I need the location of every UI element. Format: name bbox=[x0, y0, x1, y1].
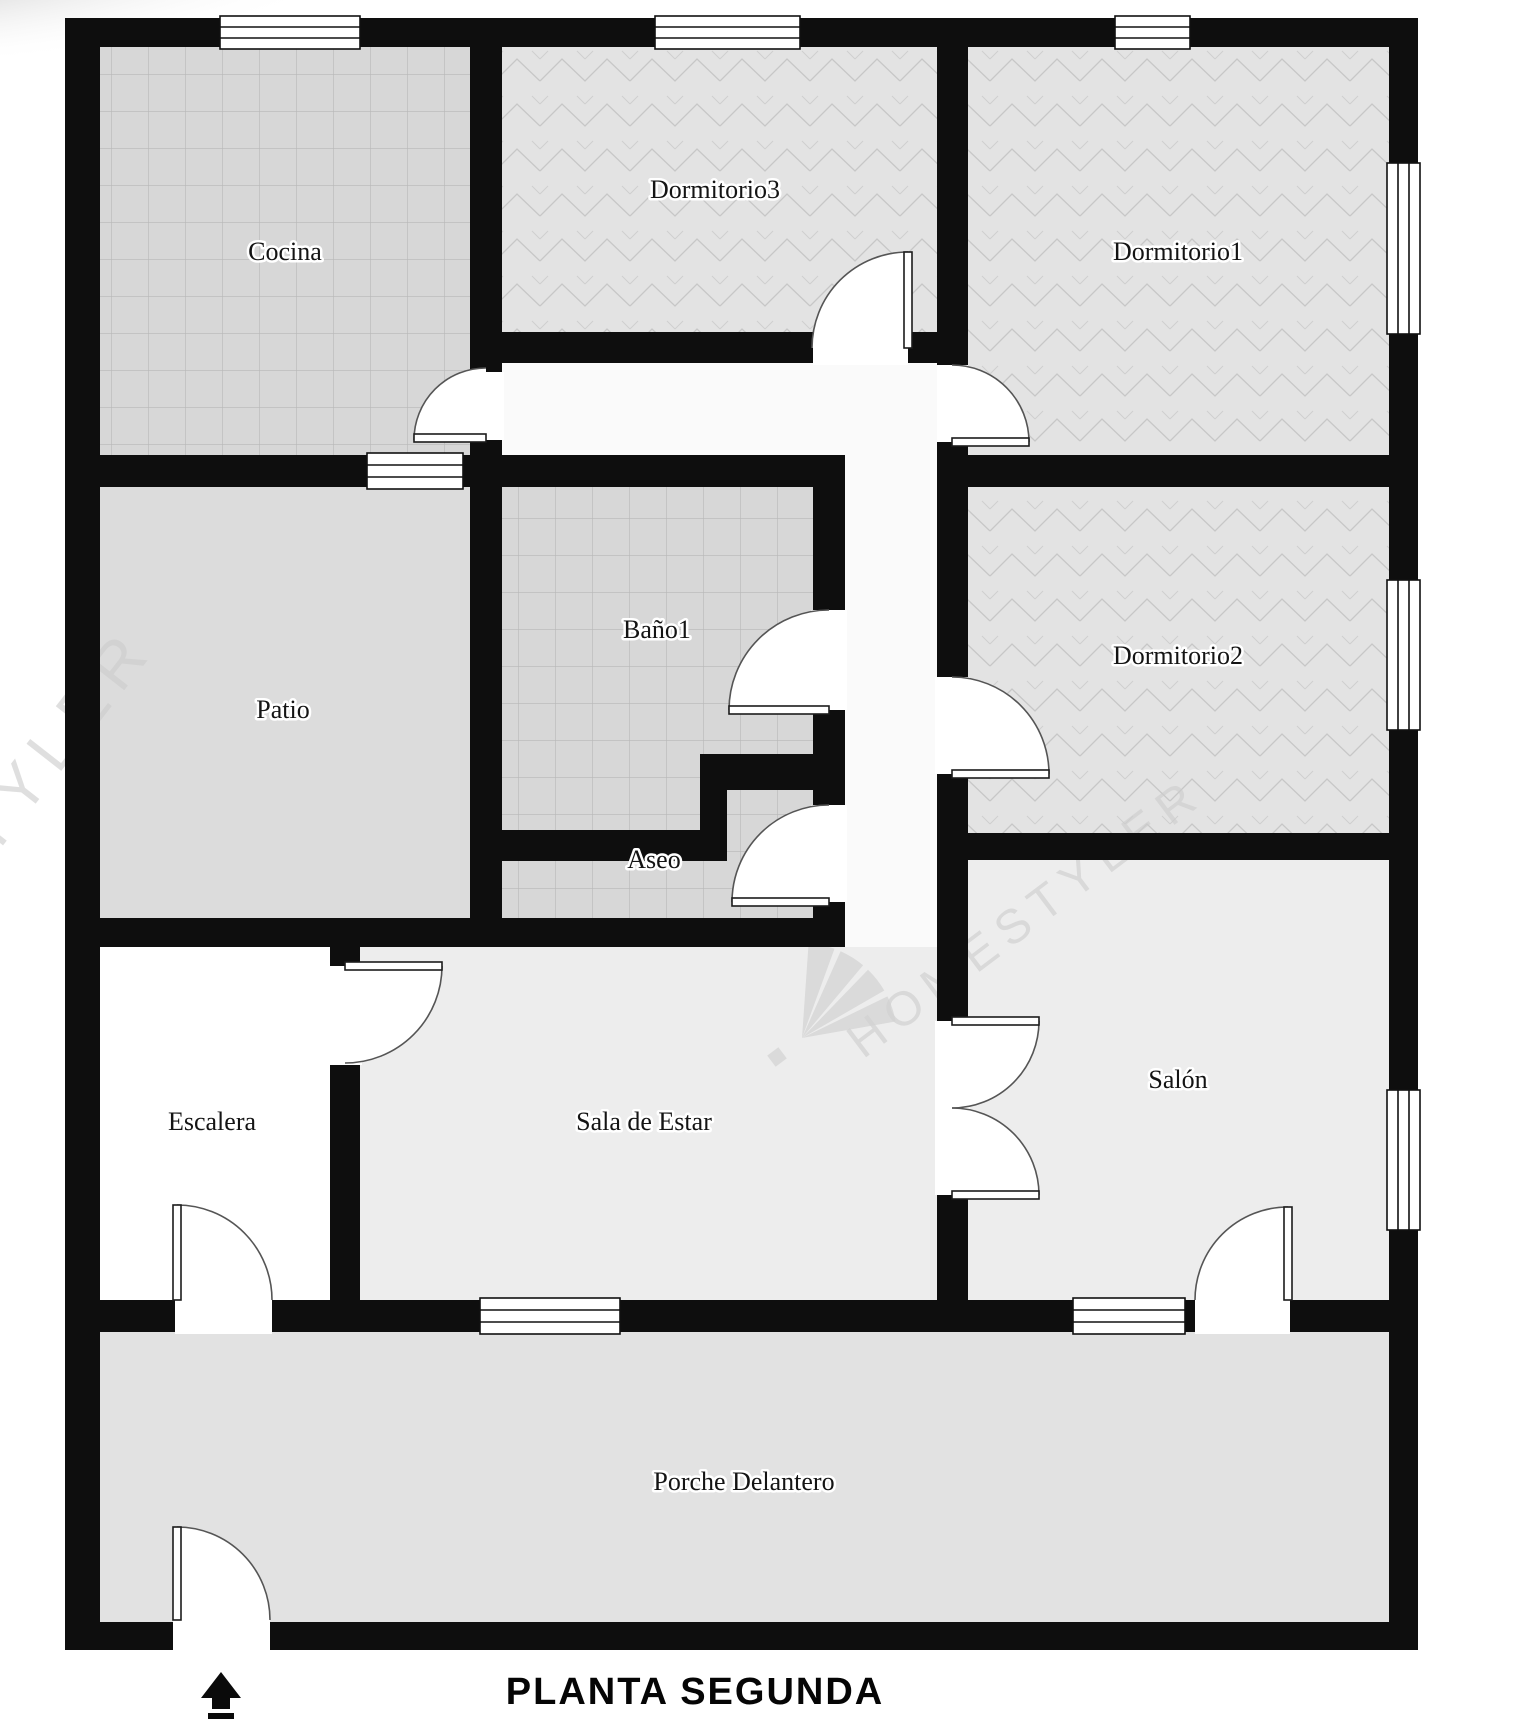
room-label-bano1: Baño1 bbox=[623, 615, 691, 644]
room-label-porche: Porche Delantero bbox=[653, 1467, 834, 1496]
window-porche-sala bbox=[480, 1298, 620, 1334]
door-salon-porche-leaf bbox=[1284, 1207, 1292, 1300]
door-dormitorio2-leaf bbox=[952, 770, 1049, 778]
door-escalera-porche-leaf bbox=[173, 1205, 181, 1300]
room-label-aseo: Aseo bbox=[627, 845, 680, 874]
wall-patio-aseo-bottom bbox=[65, 918, 845, 947]
door-bano1-leaf bbox=[729, 706, 829, 714]
room-label-dormitorio1: Dormitorio1 bbox=[1113, 237, 1243, 266]
floorplan-canvas: HOMESTYLER STYLER bbox=[0, 0, 1536, 1730]
wall-outer-left bbox=[65, 18, 100, 1650]
window-cocina-patio bbox=[367, 453, 463, 489]
window-porche-salon bbox=[1073, 1298, 1185, 1334]
window-right-dormitorio2 bbox=[1387, 580, 1420, 730]
window-top-dormitorio3 bbox=[655, 16, 800, 49]
wall-d2-salon bbox=[937, 833, 1389, 860]
door-porche-entrance-leaf bbox=[173, 1527, 181, 1620]
room-label-salon: Salón bbox=[1148, 1065, 1207, 1094]
door-aseo-leaf bbox=[732, 898, 829, 906]
wall-d3-d1-divider bbox=[937, 47, 968, 365]
wall-bano1-bottom bbox=[470, 830, 727, 861]
north-arrow-icon bbox=[201, 1672, 241, 1719]
room-label-patio: Patio bbox=[256, 695, 309, 724]
plan-title: PLANTA SEGUNDA bbox=[506, 1671, 884, 1713]
room-label-dormitorio2: Dormitorio2 bbox=[1113, 641, 1243, 670]
window-top-dormitorio1 bbox=[1115, 16, 1190, 49]
door-cocina-leaf bbox=[414, 434, 486, 442]
door-dormitorio3-leaf bbox=[904, 252, 912, 348]
wall-d1-d2-divider bbox=[968, 455, 1389, 487]
window-right-salon bbox=[1387, 1090, 1420, 1230]
room-label-escalera: Escalera bbox=[168, 1107, 257, 1136]
door-escalera-sala-leaf bbox=[345, 962, 442, 970]
window-top-cocina bbox=[220, 16, 360, 49]
window-right-dormitorio1 bbox=[1387, 163, 1420, 334]
wall-d1-d2-divider-stub bbox=[937, 442, 968, 487]
room-label-cocina: Cocina bbox=[248, 237, 322, 266]
door-double-upper-leaf bbox=[952, 1017, 1039, 1025]
wall-cocina-right bbox=[470, 47, 502, 947]
room-label-dormitorio3: Dormitorio3 bbox=[650, 175, 780, 204]
floorplan-page: HOMESTYLER STYLER bbox=[0, 0, 1536, 1730]
door-double-lower-leaf bbox=[952, 1191, 1039, 1199]
room-label-sala: Sala de Estar bbox=[576, 1107, 712, 1136]
door-dormitorio1-leaf bbox=[952, 438, 1029, 446]
wall-bano-step-horizontal bbox=[700, 754, 845, 790]
